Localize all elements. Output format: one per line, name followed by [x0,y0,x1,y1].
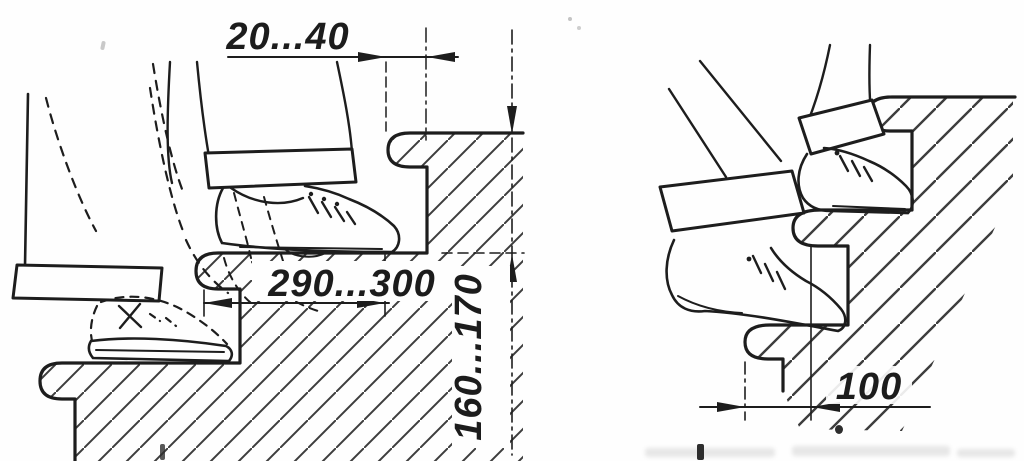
label-riser-height: 160...170 [448,273,490,440]
arrow-right-icon [717,402,745,412]
label-narrow-tread: 100 [836,366,902,408]
technical-drawing-canvas: 20...40 290...300 160...170 [0,0,1024,461]
front-trouser-cuff [205,149,356,188]
rear-shoe [89,297,232,361]
figure-svg: 20...40 290...300 160...170 [0,0,1024,461]
lace-cross-mark [119,304,141,328]
caption-smudge [792,446,950,456]
upper-leg [799,45,884,154]
caption-smudge [645,448,775,457]
left-stair-drawing: 20...40 290...300 160...170 [13,16,524,461]
arrow-down-icon [507,106,517,134]
front-leg [153,62,356,189]
upper-trouser-cuff [799,100,884,154]
arrow-right-icon [358,52,386,62]
scan-speck [835,425,843,434]
scan-speck [568,17,572,21]
lower-trouser-cuff [660,171,804,231]
arrow-left-icon [427,52,455,62]
caption-smudge [957,449,1015,457]
label-tread-depth: 290...300 [267,263,435,305]
rear-trouser-cuff [13,265,162,301]
lower-shoe [667,240,846,331]
scan-speck [160,444,165,460]
scan-speck [697,444,704,460]
lower-leg [660,61,804,231]
arrow-left-icon [204,298,232,308]
upper-shoe [798,148,912,213]
label-nosing-overhang: 20...40 [225,16,349,58]
scan-speck [577,26,581,30]
lace-ticks [309,197,355,224]
dim-nosing-overhang: 20...40 [225,16,458,140]
right-stair-drawing: 100 [660,45,1015,431]
